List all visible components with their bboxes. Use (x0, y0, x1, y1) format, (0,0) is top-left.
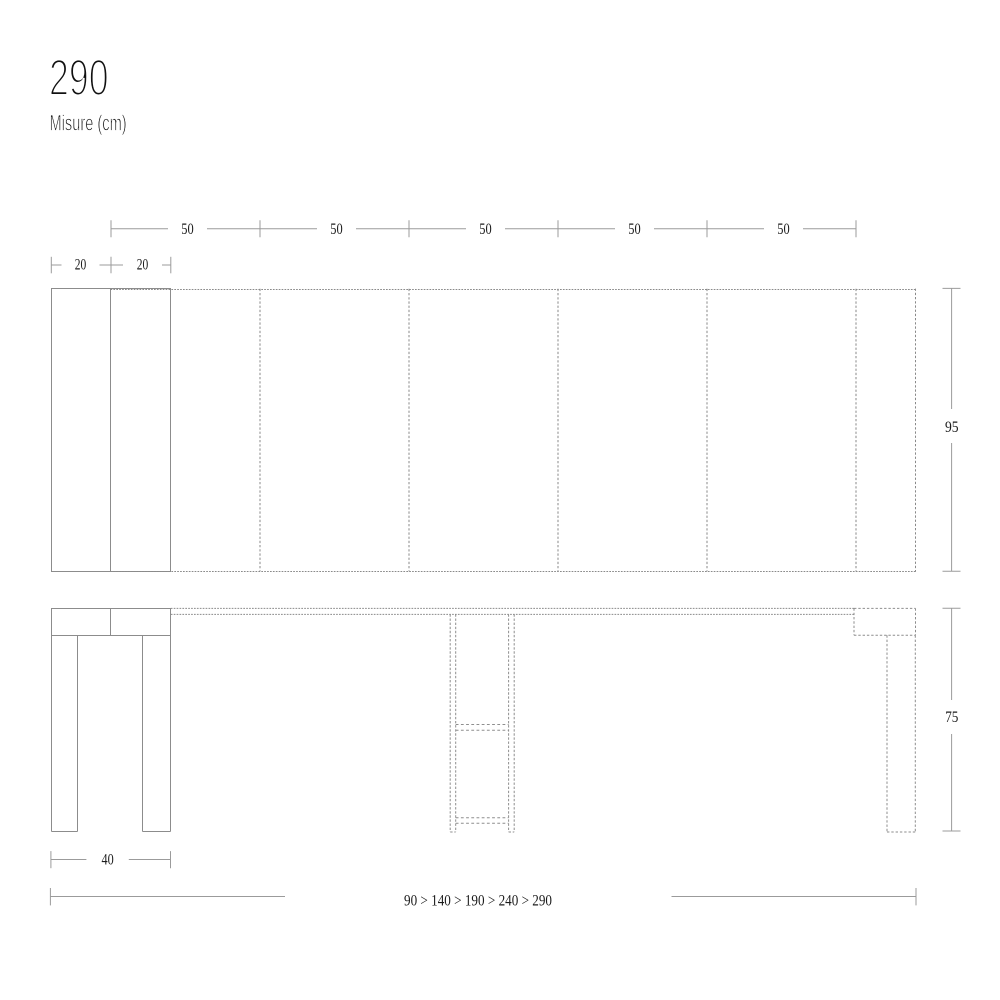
svg-text:50: 50 (330, 221, 342, 238)
svg-text:40: 40 (102, 852, 114, 869)
svg-text:20: 20 (75, 257, 87, 274)
svg-text:Misure (cm): Misure (cm) (50, 112, 127, 137)
svg-text:20: 20 (137, 257, 149, 274)
svg-text:290: 290 (49, 50, 109, 107)
svg-text:50: 50 (479, 221, 491, 238)
svg-text:95: 95 (945, 419, 959, 436)
svg-text:75: 75 (945, 709, 958, 726)
svg-text:50: 50 (628, 221, 640, 238)
svg-text:50: 50 (777, 221, 789, 238)
svg-text:90 > 140 > 190 > 240 > 290: 90 > 140 > 190 > 240 > 290 (404, 893, 552, 910)
svg-text:50: 50 (181, 221, 193, 238)
